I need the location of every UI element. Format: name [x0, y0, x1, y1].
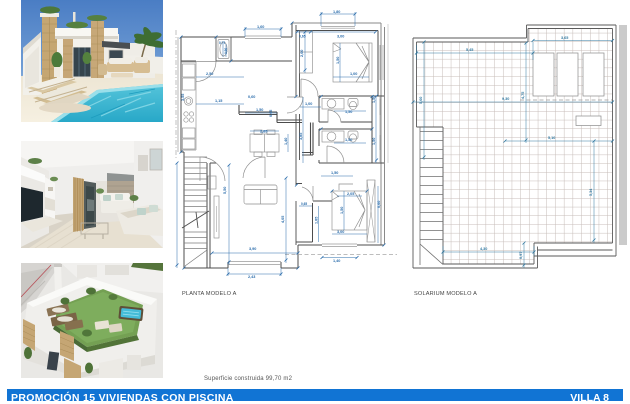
svg-text:3,90: 3,90	[249, 247, 256, 251]
svg-text:4,75: 4,75	[521, 92, 525, 99]
svg-text:5,10: 5,10	[548, 136, 555, 140]
svg-text:1,50: 1,50	[256, 108, 263, 112]
svg-text:5,60: 5,60	[419, 97, 423, 104]
svg-text:1,80: 1,80	[333, 10, 340, 14]
svg-text:1,50: 1,50	[345, 110, 352, 114]
svg-text:0,65: 0,65	[301, 202, 307, 206]
svg-text:0,90: 0,90	[224, 48, 228, 54]
svg-text:4,30: 4,30	[480, 247, 487, 251]
svg-text:0,75: 0,75	[219, 41, 225, 45]
svg-text:1,00: 1,00	[350, 72, 357, 76]
svg-text:2,85: 2,85	[260, 130, 267, 134]
svg-text:3,55: 3,55	[181, 94, 185, 101]
svg-text:2,43: 2,43	[248, 275, 255, 279]
svg-text:5,50: 5,50	[223, 187, 227, 194]
svg-text:3,00: 3,00	[337, 35, 344, 39]
svg-text:2,05: 2,05	[347, 192, 354, 196]
svg-text:1,40: 1,40	[333, 259, 340, 263]
svg-text:4,05: 4,05	[281, 216, 285, 223]
svg-text:0,65: 0,65	[299, 35, 306, 39]
svg-text:0,60: 0,60	[248, 95, 255, 99]
svg-text:1,50: 1,50	[372, 96, 376, 103]
svg-text:2,00: 2,00	[300, 50, 304, 57]
svg-text:9,30: 9,30	[502, 97, 509, 101]
svg-text:2,50: 2,50	[206, 72, 213, 76]
svg-text:1,15: 1,15	[215, 99, 222, 103]
svg-text:1,50: 1,50	[372, 138, 376, 145]
svg-text:0,60: 0,60	[377, 201, 381, 208]
svg-text:1,50: 1,50	[340, 207, 344, 214]
svg-text:5,45: 5,45	[466, 48, 473, 52]
svg-text:0,65: 0,65	[269, 110, 273, 117]
svg-text:1,40: 1,40	[284, 138, 288, 145]
svg-text:1,50: 1,50	[345, 138, 352, 142]
svg-text:1,85: 1,85	[315, 217, 319, 224]
svg-text:3,85: 3,85	[299, 133, 303, 140]
svg-text:0,97: 0,97	[519, 252, 523, 259]
svg-text:1,50: 1,50	[336, 57, 340, 64]
svg-text:3,00: 3,00	[337, 230, 344, 234]
svg-text:3,65: 3,65	[561, 36, 568, 40]
svg-text:1,50: 1,50	[331, 171, 338, 175]
svg-text:5,34: 5,34	[589, 188, 593, 196]
svg-text:1,00: 1,00	[305, 102, 312, 106]
svg-text:1,60: 1,60	[257, 25, 264, 29]
